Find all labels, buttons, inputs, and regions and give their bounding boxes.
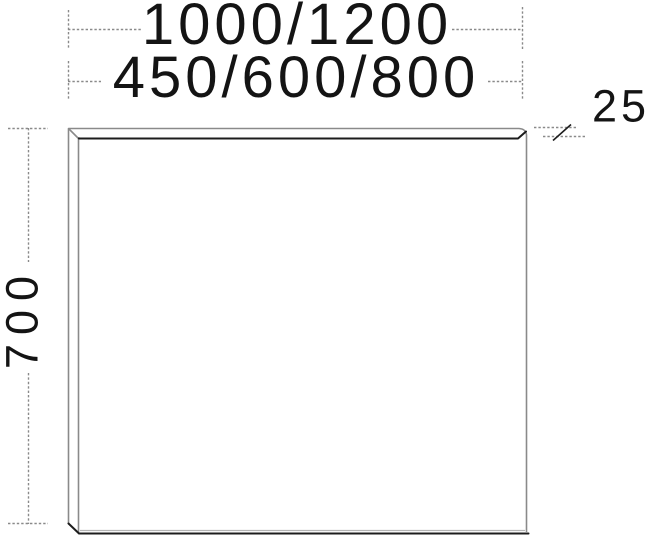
technical-drawing: 1000/1200 450/600/800 25 700 [0, 0, 666, 536]
panel-back-edges [69, 129, 527, 534]
dim-width-secondary-label: 450/600/800 [113, 49, 480, 107]
dim-depth-label: 25 [592, 84, 650, 129]
panel-front-edges [69, 132, 529, 534]
dim-height-label: 700 [0, 267, 45, 369]
